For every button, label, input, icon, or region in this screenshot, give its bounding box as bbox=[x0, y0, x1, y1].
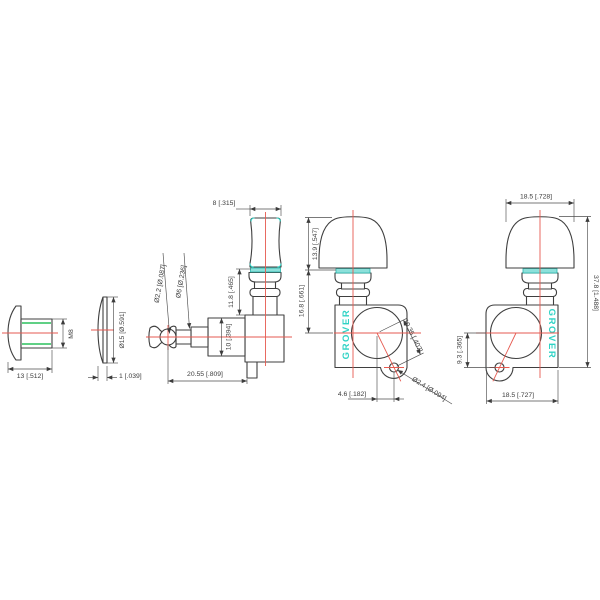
front-grover-logo: GROVER bbox=[341, 309, 352, 360]
view-tuner-front: GROVER 13.9 [.547] 16.8 [.661] 10.35 [.4… bbox=[299, 210, 453, 404]
dimension-shaft-hole: Ø2.2 [Ø.087] bbox=[154, 253, 170, 334]
label-washer-to-gear-center: 16.8 [.661] bbox=[299, 285, 306, 317]
label-bushing-length: 13 [.512] bbox=[17, 373, 44, 380]
dimension-thread-size: M8 bbox=[52, 319, 75, 348]
label-button-thickness: 8 [.315] bbox=[213, 200, 236, 207]
side-bell-collar bbox=[249, 273, 281, 283]
dimension-button-thickness: 8 [.315] bbox=[213, 200, 281, 216]
dimension-washer-to-housing: 11.8 [.465] bbox=[228, 269, 251, 315]
tuning-machine-drawing: M8 13 [.512] Ø15 [Ø.591] 1 [.039] bbox=[0, 0, 600, 600]
label-button-width: 18.5 [.728] bbox=[520, 194, 552, 201]
dimension-post-diameter: Ø6 [Ø.236] bbox=[175, 253, 189, 329]
dimension-washer-thickness: 1 [.039] bbox=[88, 366, 142, 381]
view-bushing: M8 13 [.512] bbox=[2, 306, 75, 380]
label-overall-height: 37.8 [1.488] bbox=[592, 275, 599, 311]
label-screw-offset-vertical: 9.3 [.365] bbox=[457, 336, 464, 364]
side-collar-flange bbox=[250, 289, 280, 297]
dimension-screw-hole-diameter: Ø2.4 [Ø.094] bbox=[398, 370, 453, 404]
label-gearbox-height: 10 [.394] bbox=[226, 324, 233, 351]
technical-drawing-page: M8 13 [.512] Ø15 [Ø.591] 1 [.039] bbox=[0, 0, 600, 600]
label-housing-width: 18.5 [.727] bbox=[502, 392, 534, 399]
label-overall-depth: 20.55 [.809] bbox=[187, 371, 223, 378]
label-screw-offset-horizontal: 4.6 [.182] bbox=[338, 391, 366, 398]
view-tuner-rear: GROVER 18.5 [.728] 37.8 [1.488] 9.3 [.36… bbox=[457, 194, 600, 405]
label-thread-size: M8 bbox=[68, 329, 75, 339]
label-washer-diameter: Ø15 [Ø.591] bbox=[119, 311, 126, 348]
side-housing bbox=[245, 315, 284, 362]
label-screw-hole-diameter: Ø2.4 [Ø.094] bbox=[410, 376, 447, 403]
view-tuner-side: 8 [.315] Ø2.2 [Ø.087] Ø6 [Ø.236] 11.8 [.… bbox=[146, 200, 292, 384]
side-neck bbox=[255, 282, 276, 289]
rear-grover-logo: GROVER bbox=[546, 309, 557, 360]
side-post-cylinder bbox=[253, 297, 277, 316]
label-washer-thickness: 1 [.039] bbox=[119, 373, 142, 380]
side-mounting-tab bbox=[247, 362, 257, 378]
label-washer-to-housing: 11.8 [.465] bbox=[228, 276, 235, 308]
view-washer: Ø15 [Ø.591] 1 [.039] bbox=[88, 297, 142, 381]
label-button-height: 13.9 [.547] bbox=[312, 228, 319, 260]
dimension-washer-to-gear-center: 16.8 [.661] bbox=[299, 270, 334, 333]
